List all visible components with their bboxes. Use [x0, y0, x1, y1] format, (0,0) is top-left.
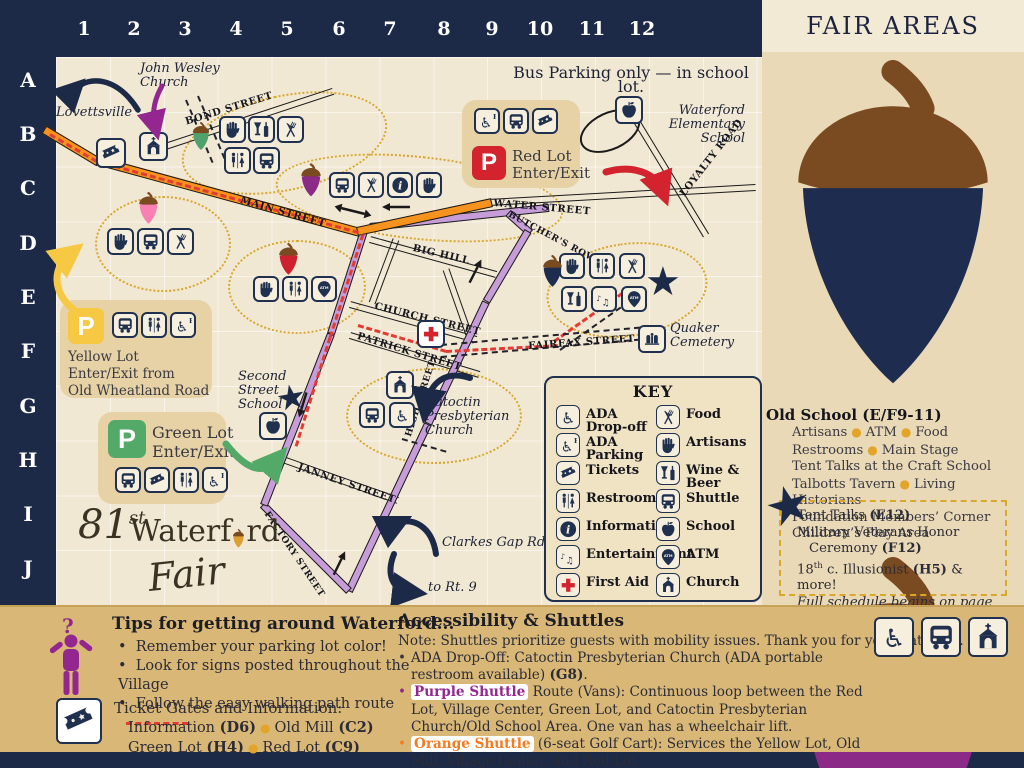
shuttle-icon	[921, 617, 961, 657]
firstaid-icon	[556, 573, 580, 597]
svg-text:i: i	[398, 178, 402, 192]
grid-col-9: 9	[485, 18, 498, 40]
key-title: KEY	[546, 382, 760, 401]
access-bullet: •ADA Drop-Off: Catoctin Presbyterian Chu…	[398, 650, 868, 684]
svg-text:♫: ♫	[565, 555, 573, 566]
route-arrow-up-factory	[326, 547, 353, 582]
wheelchair-icon: ♿	[556, 405, 580, 429]
key-item-church: Church	[656, 572, 756, 600]
restrooms-icon	[224, 147, 251, 174]
schedule-box: ★ Tent Talks (E12)Military Veterans Hono…	[779, 500, 1007, 596]
grid-col-5: 5	[280, 18, 293, 40]
entertainment-icon: ♪♫	[591, 286, 617, 312]
key-item-ada-parking: ♿PADA Parking	[556, 432, 656, 460]
shuttle-icon	[137, 228, 164, 255]
svg-text:♿: ♿	[208, 474, 220, 489]
street-label-bighill: BIG HILL	[412, 243, 471, 267]
one-way-arrow-west	[380, 200, 414, 214]
catoctin-church-icon	[386, 371, 414, 399]
cemetery-icon	[638, 325, 666, 353]
music-icon: ♪♫	[556, 545, 580, 569]
artisans-icon	[219, 116, 246, 143]
schedule-line: Military Veterans Honor	[797, 525, 997, 542]
svg-text:P: P	[493, 113, 496, 121]
label-waterford-elementary: Waterford Elementary School	[640, 104, 745, 146]
key-left-column: ♿ADA Drop-off♿PADA ParkingTicketsRestroo…	[556, 404, 656, 600]
artisans-icon	[253, 276, 279, 302]
grid-row-A: A	[20, 68, 36, 92]
key-item-artisans: Artisans	[656, 432, 756, 460]
green-lot-p-badge: P	[108, 420, 146, 458]
atm-icon: ATM	[621, 286, 647, 312]
bus-parking-note: Bus Parking only — in school lot.	[505, 66, 757, 94]
shuttle-icon	[359, 402, 385, 428]
key-right-column: FoodArtisansWine & BeerShuttleSchoolATMA…	[656, 404, 756, 600]
map-key: KEY ♿ADA Drop-off♿PADA ParkingTicketsRes…	[544, 376, 762, 602]
john-wesley-church-icon	[139, 132, 168, 161]
logo-acorn	[231, 522, 246, 542]
svg-text:♿: ♿	[883, 624, 906, 652]
key-item-tickets: Tickets	[556, 460, 656, 488]
tickets-icon	[532, 108, 558, 134]
grid-col-12: 12	[629, 18, 655, 40]
old-mill-acorn	[136, 192, 161, 226]
wine-beer-icon	[248, 116, 275, 143]
ticket-gate-line: Information (D6)●Old Mill (C2)	[128, 718, 374, 738]
bond-barn-acorn	[190, 122, 212, 152]
road-block-west	[369, 238, 399, 304]
access-bullet: •Orange Shuttle (6-seat Golf Cart): Serv…	[398, 736, 868, 768]
person-icon	[50, 631, 94, 697]
grid-col-10: 10	[527, 18, 553, 40]
access-list: •ADA Drop-Off: Catoctin Presbyterian Chu…	[398, 650, 868, 768]
to-rt9-arrow	[384, 552, 434, 598]
label-clarkes-gap: Clarkes Gap Rd.	[442, 536, 557, 550]
label-quaker-cemetery: Quaker Cemetery	[670, 322, 745, 350]
ticket-gate-line: Green Lot (H4)●Red Lot (C9)	[128, 738, 374, 758]
grid-row-D: D	[19, 231, 36, 255]
street-label-janney: JANNEY STREET	[296, 462, 396, 506]
wine-beer-icon	[561, 286, 587, 312]
shuttle-icon	[253, 147, 280, 174]
village-center-acorn	[298, 163, 324, 199]
schedule-line: Tent Talks (E12)	[797, 508, 997, 525]
svg-text:ATM: ATM	[664, 554, 673, 558]
old-school-acorn	[540, 255, 565, 289]
winebeer-icon	[656, 461, 680, 485]
yellow-lot-label: Yellow LotEnter/Exit fromOld Wheatland R…	[68, 349, 209, 400]
atm-icon: ATM	[311, 276, 337, 302]
restrooms-icon	[141, 312, 167, 338]
svg-text:♿: ♿	[480, 115, 492, 130]
bus-icon	[656, 489, 680, 513]
red-lot-label: Red LotEnter/Exit	[512, 148, 590, 182]
label-to-rt9: to Rt. 9	[428, 581, 488, 595]
grid-row-G: G	[19, 394, 36, 418]
grid-col-6: 6	[332, 18, 345, 40]
apple-icon	[656, 517, 680, 541]
key-item-shuttle: Shuttle	[656, 488, 756, 516]
restrooms-icon	[589, 253, 615, 279]
bottom-info-band: ? Tips for getting around Waterford... •…	[0, 605, 1024, 752]
key-item-first-aid: First Aid	[556, 572, 656, 600]
shuttle-icon	[115, 467, 141, 493]
church-icon	[656, 573, 680, 597]
grid-col-11: 11	[579, 18, 605, 40]
john-wesley-arrow	[144, 82, 170, 134]
key-item-ada-drop-off: ♿ADA Drop-off	[556, 404, 656, 432]
grid-row-J: J	[23, 556, 32, 580]
food-icon	[277, 116, 304, 143]
restrooms-icon	[173, 467, 199, 493]
access-bullet: •Purple Shuttle Route (Vans): Continuous…	[398, 684, 868, 736]
fair-areas-panel: Old School (E/F9-11)Artisans●ATM●FoodRes…	[762, 52, 1024, 605]
grid-row-I: I	[23, 502, 32, 526]
grid-row-E: E	[20, 285, 35, 309]
grid-column-header-bar: 123456789101112	[0, 0, 762, 57]
key-item-wine-beer: Wine & Beer	[656, 460, 756, 488]
grid-row-H: H	[19, 448, 38, 472]
fair-areas-header: FAIR AREAS	[762, 0, 1024, 52]
svg-text:ATM: ATM	[320, 286, 329, 290]
restrooms-icon	[556, 489, 580, 513]
svg-text:♿: ♿	[561, 409, 575, 426]
svg-text:P: P	[574, 437, 577, 445]
grid-row-F: F	[21, 339, 35, 363]
red-barn-acorn	[276, 243, 301, 277]
food-icon	[656, 405, 680, 429]
ticket-gate-icon	[56, 698, 102, 744]
svg-text:♿: ♿	[561, 439, 573, 454]
lovettsville-arrow	[66, 70, 144, 116]
key-item-information: iInformation	[556, 516, 656, 544]
svg-text:♿: ♿	[176, 319, 188, 334]
ticket-gates-heading: Ticket Gates and Information:	[114, 699, 342, 718]
restrooms-icon	[282, 276, 308, 302]
information-icon: i	[387, 172, 413, 198]
svg-text:i: i	[566, 522, 570, 536]
grid-col-1: 1	[77, 18, 90, 40]
key-item-restrooms: Restrooms	[556, 488, 656, 516]
fair-map-page: 123456789101112 ABCDEFGHIJ	[0, 0, 1024, 768]
svg-text:ATM: ATM	[630, 296, 639, 300]
grid-col-3: 3	[178, 18, 191, 40]
grid-col-2: 2	[127, 18, 140, 40]
artisans-icon	[107, 228, 134, 255]
key-item-atm: ATMATM	[656, 544, 756, 572]
old-school-star-icon: ★	[645, 262, 681, 302]
ada-icon: ♿	[874, 617, 914, 657]
yellow-lot-arrow	[48, 248, 94, 314]
svg-text:P: P	[189, 317, 192, 325]
map-canvas: BOND STREET MAIN STREET WATER STREET BUT…	[56, 57, 762, 605]
tickets-icon	[144, 467, 170, 493]
ada-parking-icon: ♿P	[170, 312, 196, 338]
atm-icon: ATM	[656, 545, 680, 569]
catoctin-arrow	[416, 368, 476, 416]
food-icon	[167, 228, 194, 255]
red-lot-arrow	[600, 162, 672, 204]
key-item-food: Food	[656, 404, 756, 432]
green-lot-arrow	[220, 438, 284, 480]
grid-col-7: 7	[383, 18, 396, 40]
grid-row-B: B	[20, 122, 37, 146]
access-title: Accessibility & Shuttles	[398, 611, 624, 631]
tip-bullet: • Remember your parking lot color!	[118, 638, 418, 657]
grid-col-4: 4	[229, 18, 242, 40]
key-item-entertainment: ♪♫Entertainment	[556, 544, 656, 572]
ada-dropoff-icon: ♿	[389, 402, 415, 428]
food-icon	[358, 172, 384, 198]
ada-parking-icon: ♿P	[556, 433, 580, 457]
fair-area-section-0: Old School (E/F9-11)Artisans●ATM●FoodRes…	[766, 58, 1020, 543]
tip-bullet: • Look for signs posted throughout the V…	[118, 657, 418, 695]
key-item-school: School	[656, 516, 756, 544]
shuttle-icon	[112, 312, 138, 338]
hand-icon	[656, 433, 680, 457]
grid-col-8: 8	[437, 18, 450, 40]
schedule-line: Ceremony (F12)	[809, 541, 997, 558]
ticket-icon	[556, 461, 580, 485]
shuttle-icon	[329, 172, 355, 198]
tickets-icon	[96, 138, 126, 168]
ada-parking-icon: ♿P	[474, 108, 500, 134]
shuttle-icon	[503, 108, 529, 134]
school-icon	[615, 96, 643, 124]
first-aid-icon	[417, 320, 445, 348]
info-icon: i	[556, 517, 580, 541]
artisans-icon	[416, 172, 442, 198]
svg-text:♿: ♿	[395, 407, 409, 424]
grid-row-C: C	[20, 176, 36, 200]
svg-text:♫: ♫	[601, 297, 609, 308]
walking-path-1	[49, 133, 97, 163]
red-lot-p-badge: P	[472, 146, 506, 180]
food-icon	[619, 253, 645, 279]
schedule-line: 18th c. Illusionist (H5) & more!	[797, 558, 997, 595]
ticket-gates-lines: Information (D6)●Old Mill (C2)Green Lot …	[128, 718, 374, 758]
church-icon	[968, 617, 1008, 657]
